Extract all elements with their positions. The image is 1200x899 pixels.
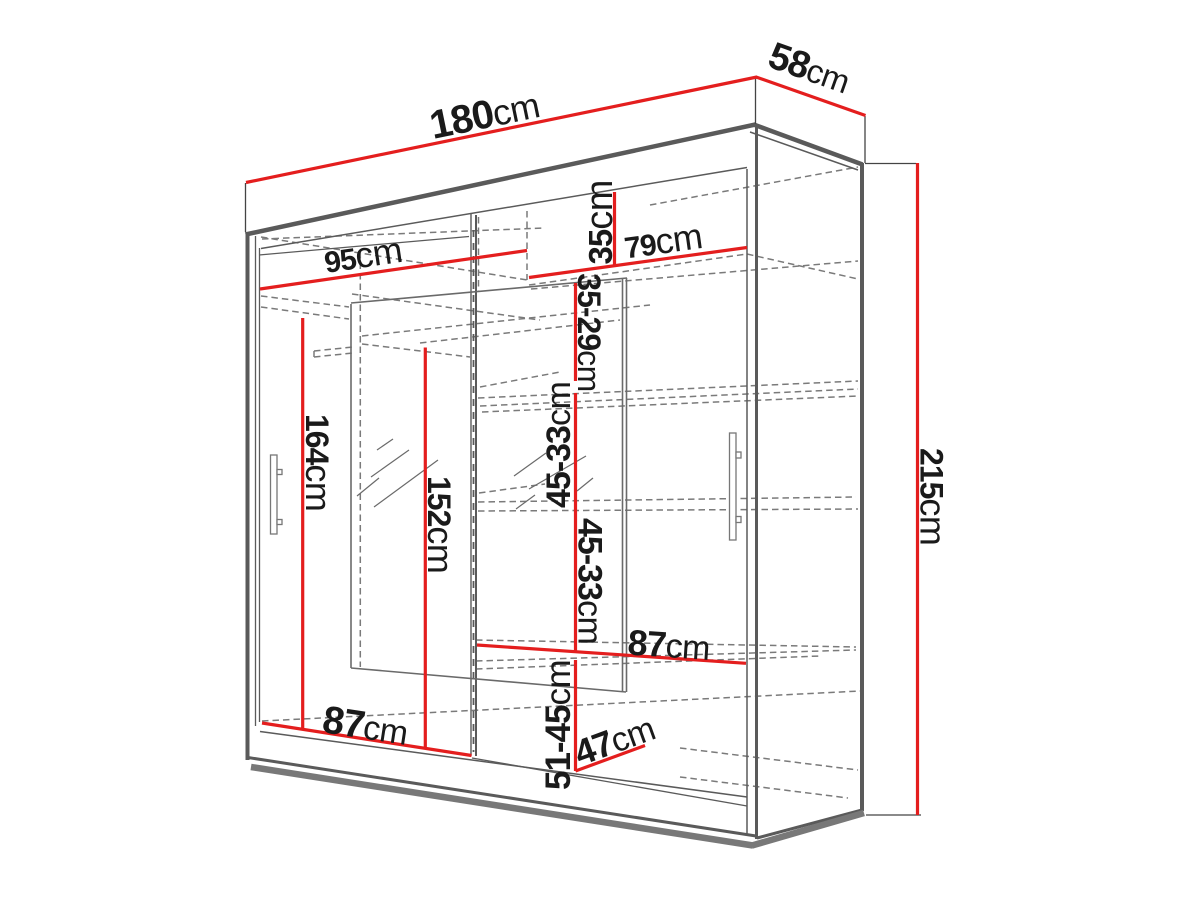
svg-text:45-33cm: 45-33cm xyxy=(540,382,578,508)
svg-text:35cm: 35cm xyxy=(579,180,621,264)
svg-text:152cm: 152cm xyxy=(420,476,461,573)
svg-text:164cm: 164cm xyxy=(298,414,339,511)
svg-text:45-33cm: 45-33cm xyxy=(571,518,609,644)
svg-text:215cm: 215cm xyxy=(913,448,954,545)
svg-text:87cm: 87cm xyxy=(626,622,711,668)
svg-text:51-45cm: 51-45cm xyxy=(539,660,578,790)
svg-text:35-29cm: 35-29cm xyxy=(571,273,607,392)
